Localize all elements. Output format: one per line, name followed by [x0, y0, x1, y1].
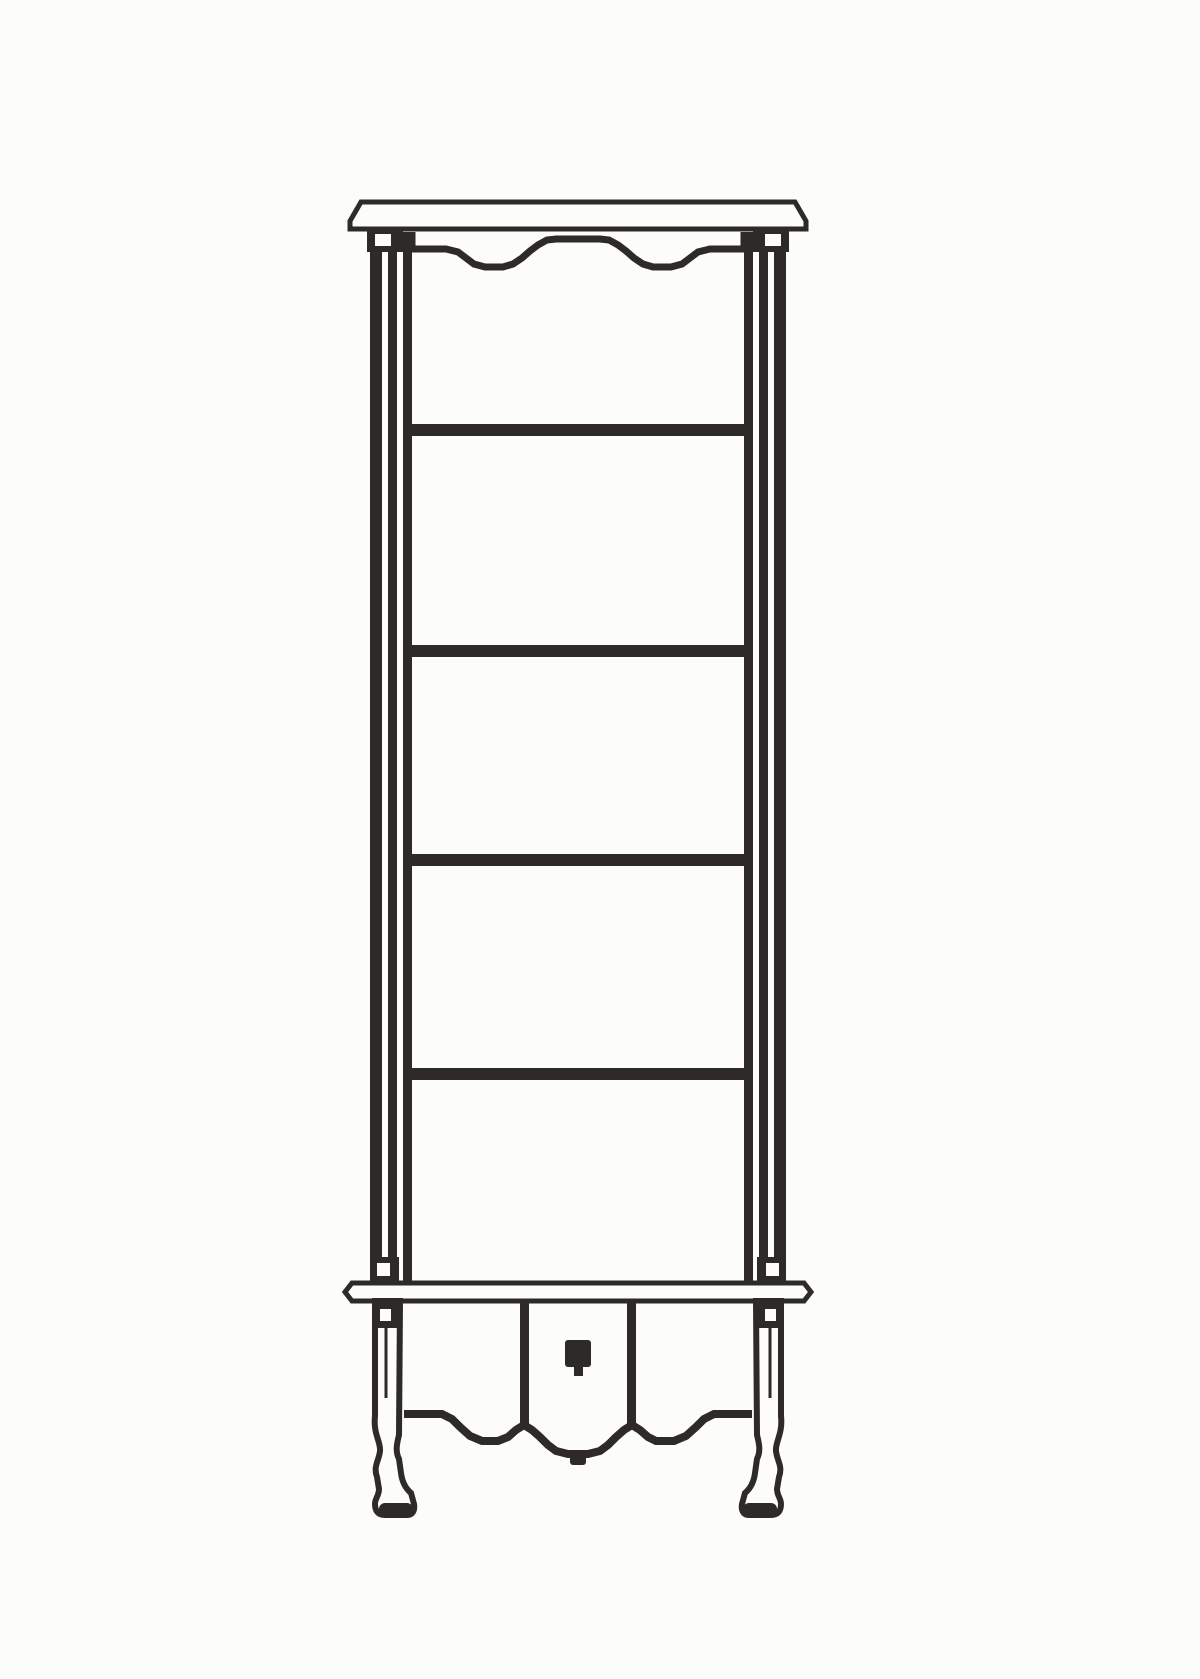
scanned-page [0, 0, 1200, 1679]
left-leg [375, 1301, 415, 1515]
shelf-2 [403, 645, 753, 657]
right-interior-frame-line [744, 232, 753, 1283]
furniture-drawing [0, 0, 1200, 1679]
right-leg [742, 1301, 782, 1515]
left-stile-inner-line [388, 229, 397, 1283]
base-board [345, 1283, 811, 1301]
apron-center-pendant [570, 1450, 586, 1465]
right-stile-inner-line [759, 229, 768, 1283]
left-panel-divider [520, 1301, 529, 1427]
base-apron [404, 1414, 752, 1454]
left-corbel-rosette [377, 1263, 390, 1276]
left-interior-frame-line [403, 232, 412, 1283]
right-corbel-rosette [766, 1263, 779, 1276]
right-stile-outer-line [774, 229, 786, 1283]
top-valance [412, 232, 744, 267]
shelf-3 [403, 854, 753, 866]
shelf-1 [403, 424, 753, 436]
left-foot-pad [379, 1503, 413, 1515]
left-capital-rosette [375, 234, 391, 246]
shelf-4 [403, 1068, 753, 1080]
cabinet-drawing [0, 0, 1200, 1679]
right-panel-divider [627, 1301, 636, 1427]
right-foot-pad [743, 1503, 777, 1515]
left-bracket-rosette [380, 1309, 391, 1321]
cornice-board [350, 202, 806, 229]
drawer-knob [565, 1340, 591, 1367]
right-bracket-rosette [765, 1309, 776, 1321]
knob-drop [574, 1367, 583, 1376]
right-capital-rosette [765, 234, 781, 246]
left-stile-outer-line [370, 229, 382, 1283]
